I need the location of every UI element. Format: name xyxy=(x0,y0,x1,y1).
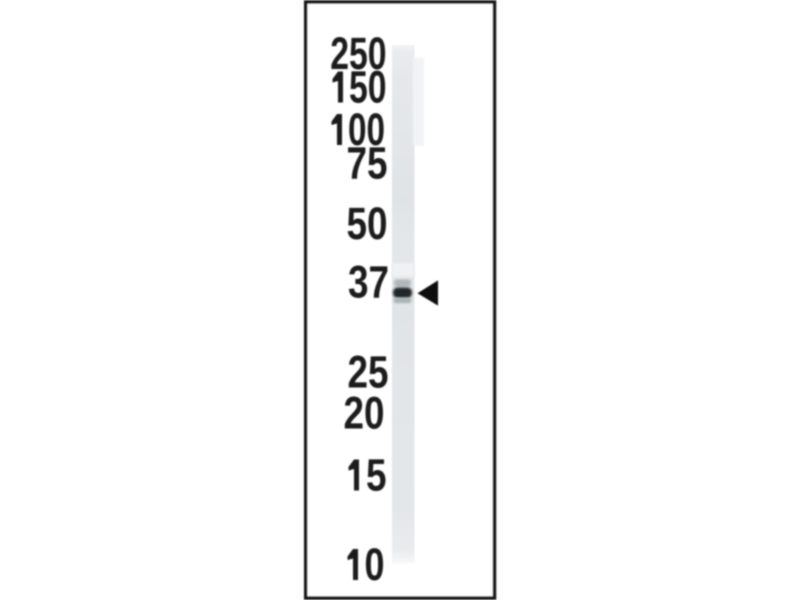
svg-text:20: 20 xyxy=(343,388,384,438)
svg-text:0: 0 xyxy=(364,539,384,590)
svg-text:75: 75 xyxy=(346,138,387,188)
svg-text:50: 50 xyxy=(346,199,387,249)
svg-text:5: 5 xyxy=(366,450,387,500)
svg-text:37: 37 xyxy=(348,257,389,307)
